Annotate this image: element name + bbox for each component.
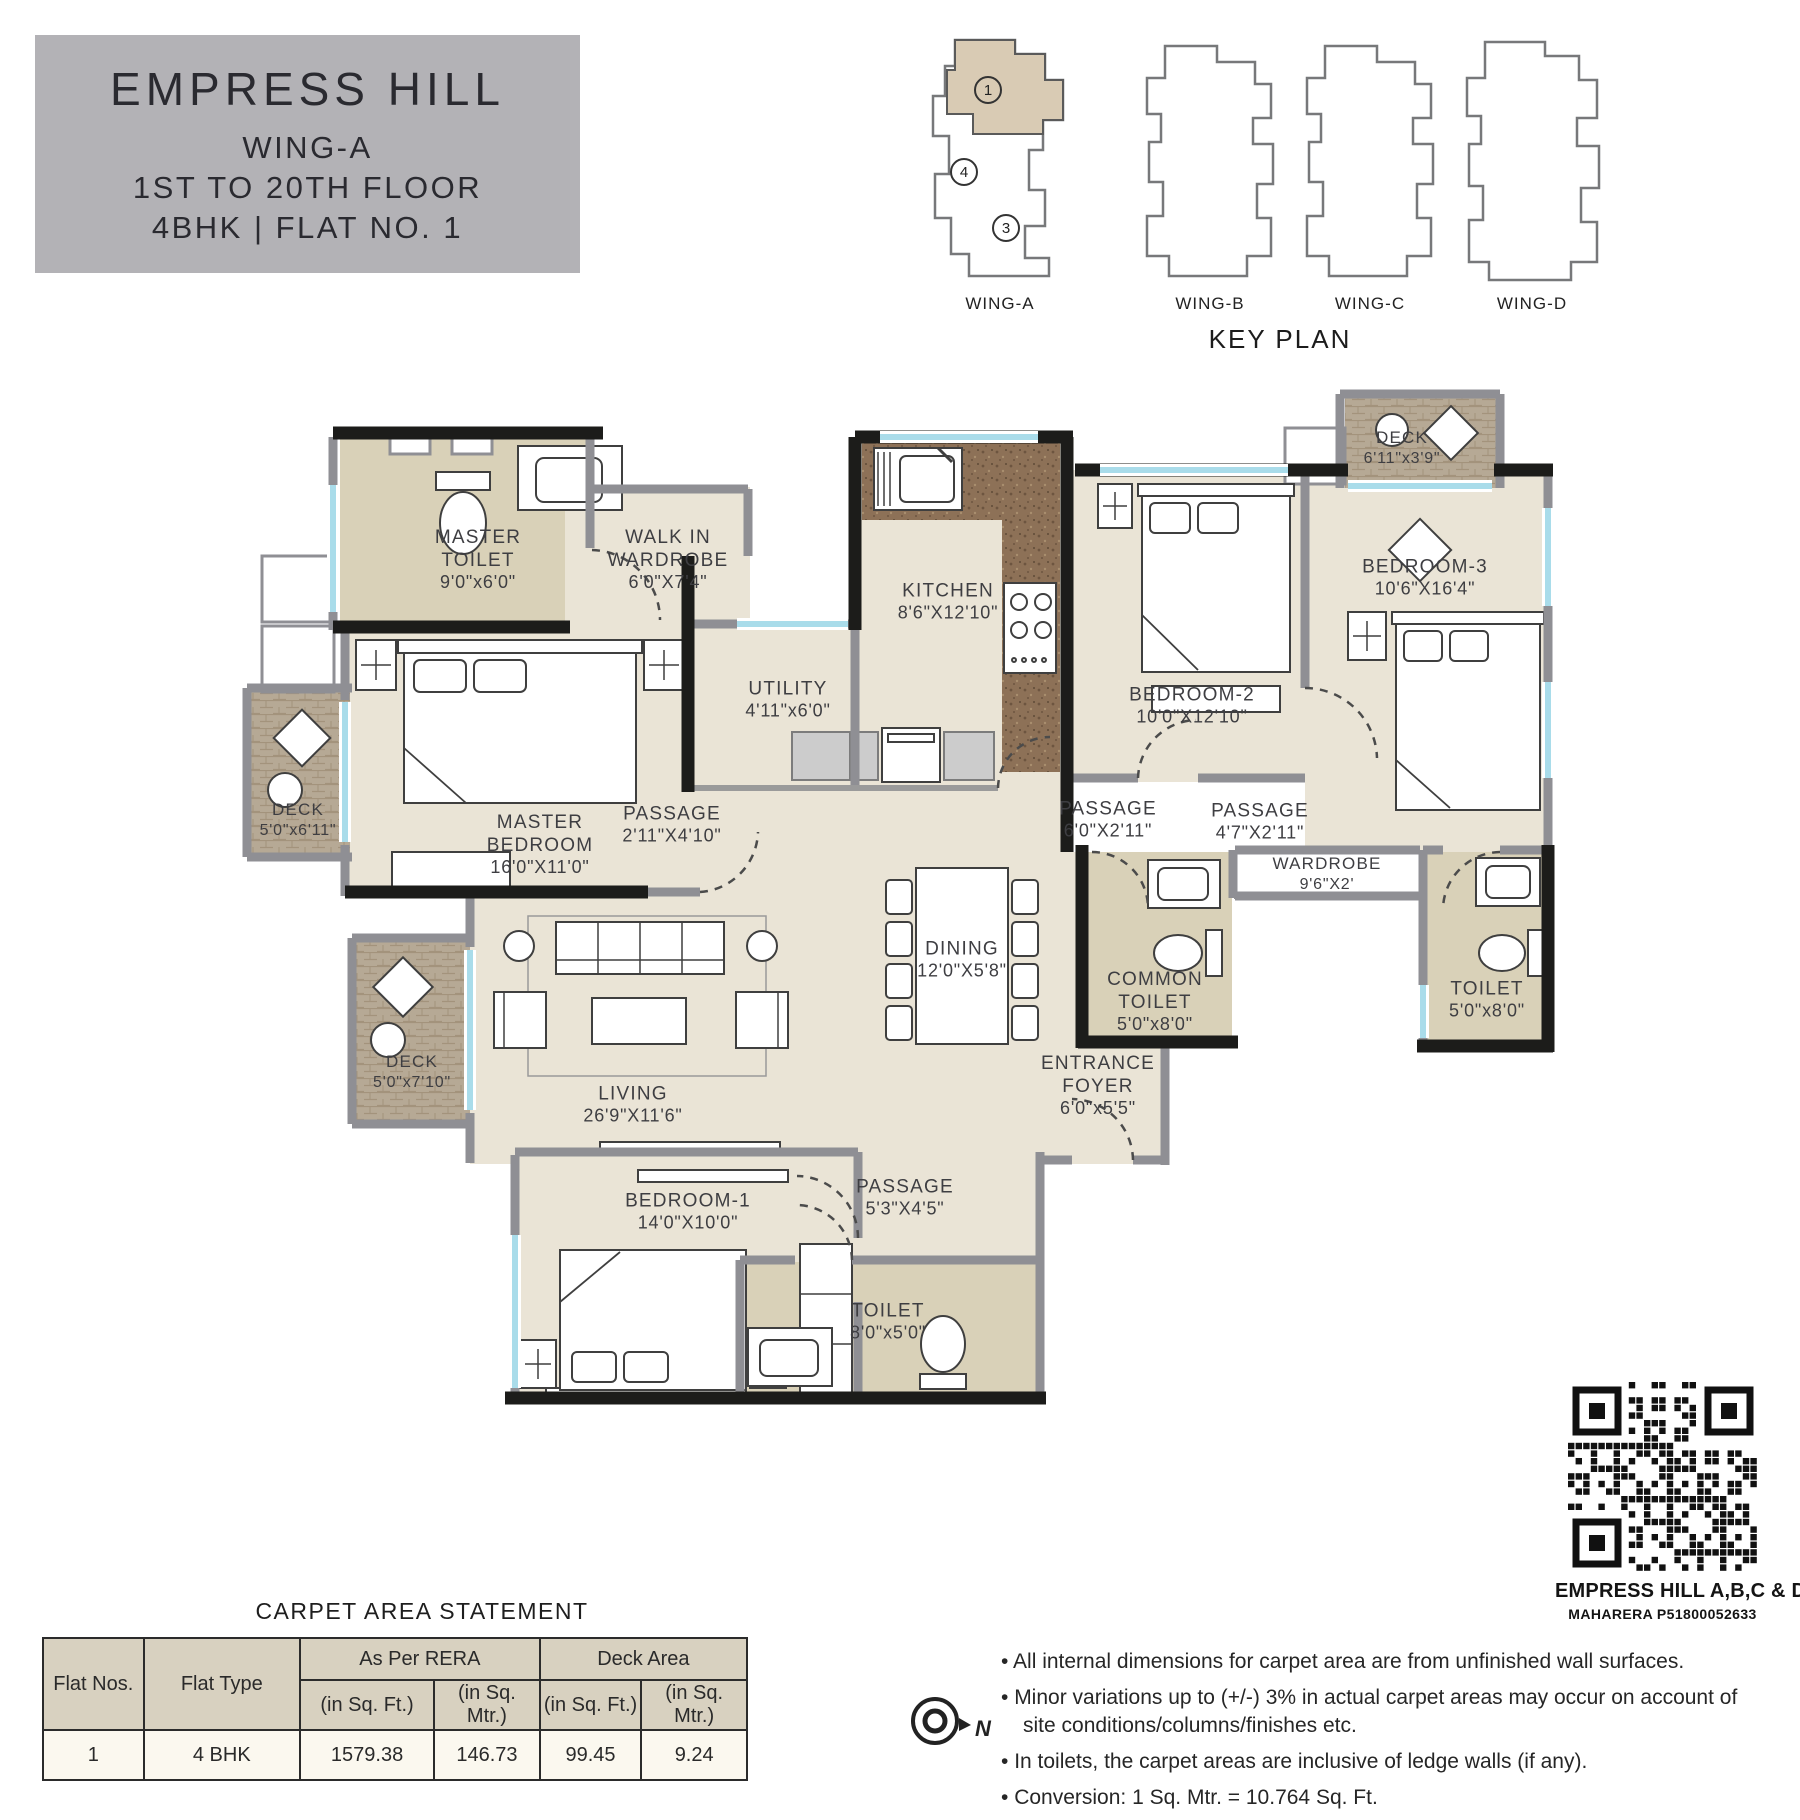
group-rera: As Per RERA xyxy=(300,1638,540,1680)
table-row: 1 4 BHK 1579.38 146.73 99.45 9.24 xyxy=(43,1730,747,1780)
qr-block: EMPRESS HILL A,B,C & D MAHARERA P5180005… xyxy=(1555,1382,1770,1622)
col-flat-nos: Flat Nos. xyxy=(43,1638,144,1730)
room-label: ENTRANCE FOYER6'0"x5'5" xyxy=(1041,1052,1155,1120)
room-label: WALK IN WARDROBE6'0"X7'4" xyxy=(608,526,729,594)
north-arrow-icon: N xyxy=(905,1686,1001,1756)
qr-caption-project: EMPRESS HILL A,B,C & D xyxy=(1555,1580,1770,1603)
sub-deck-sqft: (in Sq. Ft.) xyxy=(540,1680,642,1730)
notes-list: All internal dimensions for carpet area … xyxy=(1001,1648,1775,1820)
carpet-area-statement: CARPET AREA STATEMENT Flat Nos. Flat Typ… xyxy=(42,1598,802,1781)
room-label: TOILET8'0"x5'0" xyxy=(850,1299,926,1344)
sub-rera-sqmtr: (in Sq. Mtr.) xyxy=(434,1680,540,1730)
room-label: PASSAGE2'11"X4'10" xyxy=(622,802,721,847)
cell-flat-no: 1 xyxy=(43,1730,144,1780)
room-label: DECK5'0"x7'10" xyxy=(373,1052,451,1092)
qr-code xyxy=(1568,1382,1758,1572)
cell-rera-sqft: 1579.38 xyxy=(300,1730,434,1780)
sub-deck-sqmtr: (in Sq. Mtr.) xyxy=(641,1680,747,1730)
room-label: BEDROOM-310'6"X16'4" xyxy=(1362,555,1488,600)
note-item: In toilets, the carpet areas are inclusi… xyxy=(1001,1748,1775,1775)
cell-deck-sqft: 99.45 xyxy=(540,1730,642,1780)
sub-rera-sqft: (in Sq. Ft.) xyxy=(300,1680,434,1730)
qr-caption-rera: MAHARERA P51800052633 xyxy=(1555,1606,1770,1622)
room-label: DINING12'0"X5'8" xyxy=(917,937,1007,982)
carpet-table: Flat Nos. Flat Type As Per RERA Deck Are… xyxy=(42,1637,748,1781)
north-label: N xyxy=(975,1716,992,1741)
cell-flat-type: 4 BHK xyxy=(144,1730,300,1780)
room-label: TOILET5'0"x8'0" xyxy=(1449,977,1525,1022)
room-label: MASTER TOILET9'0"x6'0" xyxy=(435,526,521,594)
note-item: All internal dimensions for carpet area … xyxy=(1001,1648,1775,1675)
floor-plan xyxy=(0,0,1800,1800)
room-label: DECK5'0"x6'11" xyxy=(260,800,337,840)
col-flat-type: Flat Type xyxy=(144,1638,300,1730)
room-label: PASSAGE6'0"X2'11" xyxy=(1059,797,1157,842)
note-item: Minor variations up to (+/-) 3% in actua… xyxy=(1001,1684,1775,1739)
room-label: PASSAGE4'7"X2'11" xyxy=(1211,799,1309,844)
room-label: LIVING26'9"X11'6" xyxy=(583,1082,682,1127)
carpet-table-title: CARPET AREA STATEMENT xyxy=(42,1598,802,1625)
room-label: DECK6'11"x3'9" xyxy=(1364,428,1441,468)
notes-block: N All internal dimensions for carpet are… xyxy=(905,1648,1775,1820)
room-label: KITCHEN8'6"X12'10" xyxy=(898,579,999,624)
note-item: Conversion: 1 Sq. Mtr. = 10.764 Sq. Ft. xyxy=(1001,1784,1775,1811)
room-label: WARDROBE9'6"X2' xyxy=(1272,854,1381,894)
north-compass: N xyxy=(905,1648,1001,1820)
room-label: UTILITY4'11"x6'0" xyxy=(745,677,830,722)
room-label: BEDROOM-210'0"X12'10" xyxy=(1129,683,1255,728)
room-label: COMMON TOILET5'0"x8'0" xyxy=(1107,968,1203,1036)
cell-rera-sqmtr: 146.73 xyxy=(434,1730,540,1780)
room-label: MASTER BEDROOM16'0"X11'0" xyxy=(487,811,594,879)
room-label: PASSAGE5'3"X4'5" xyxy=(856,1175,954,1220)
cell-deck-sqmtr: 9.24 xyxy=(641,1730,747,1780)
room-label: BEDROOM-114'0"X10'0" xyxy=(625,1189,751,1234)
group-deck: Deck Area xyxy=(540,1638,747,1680)
